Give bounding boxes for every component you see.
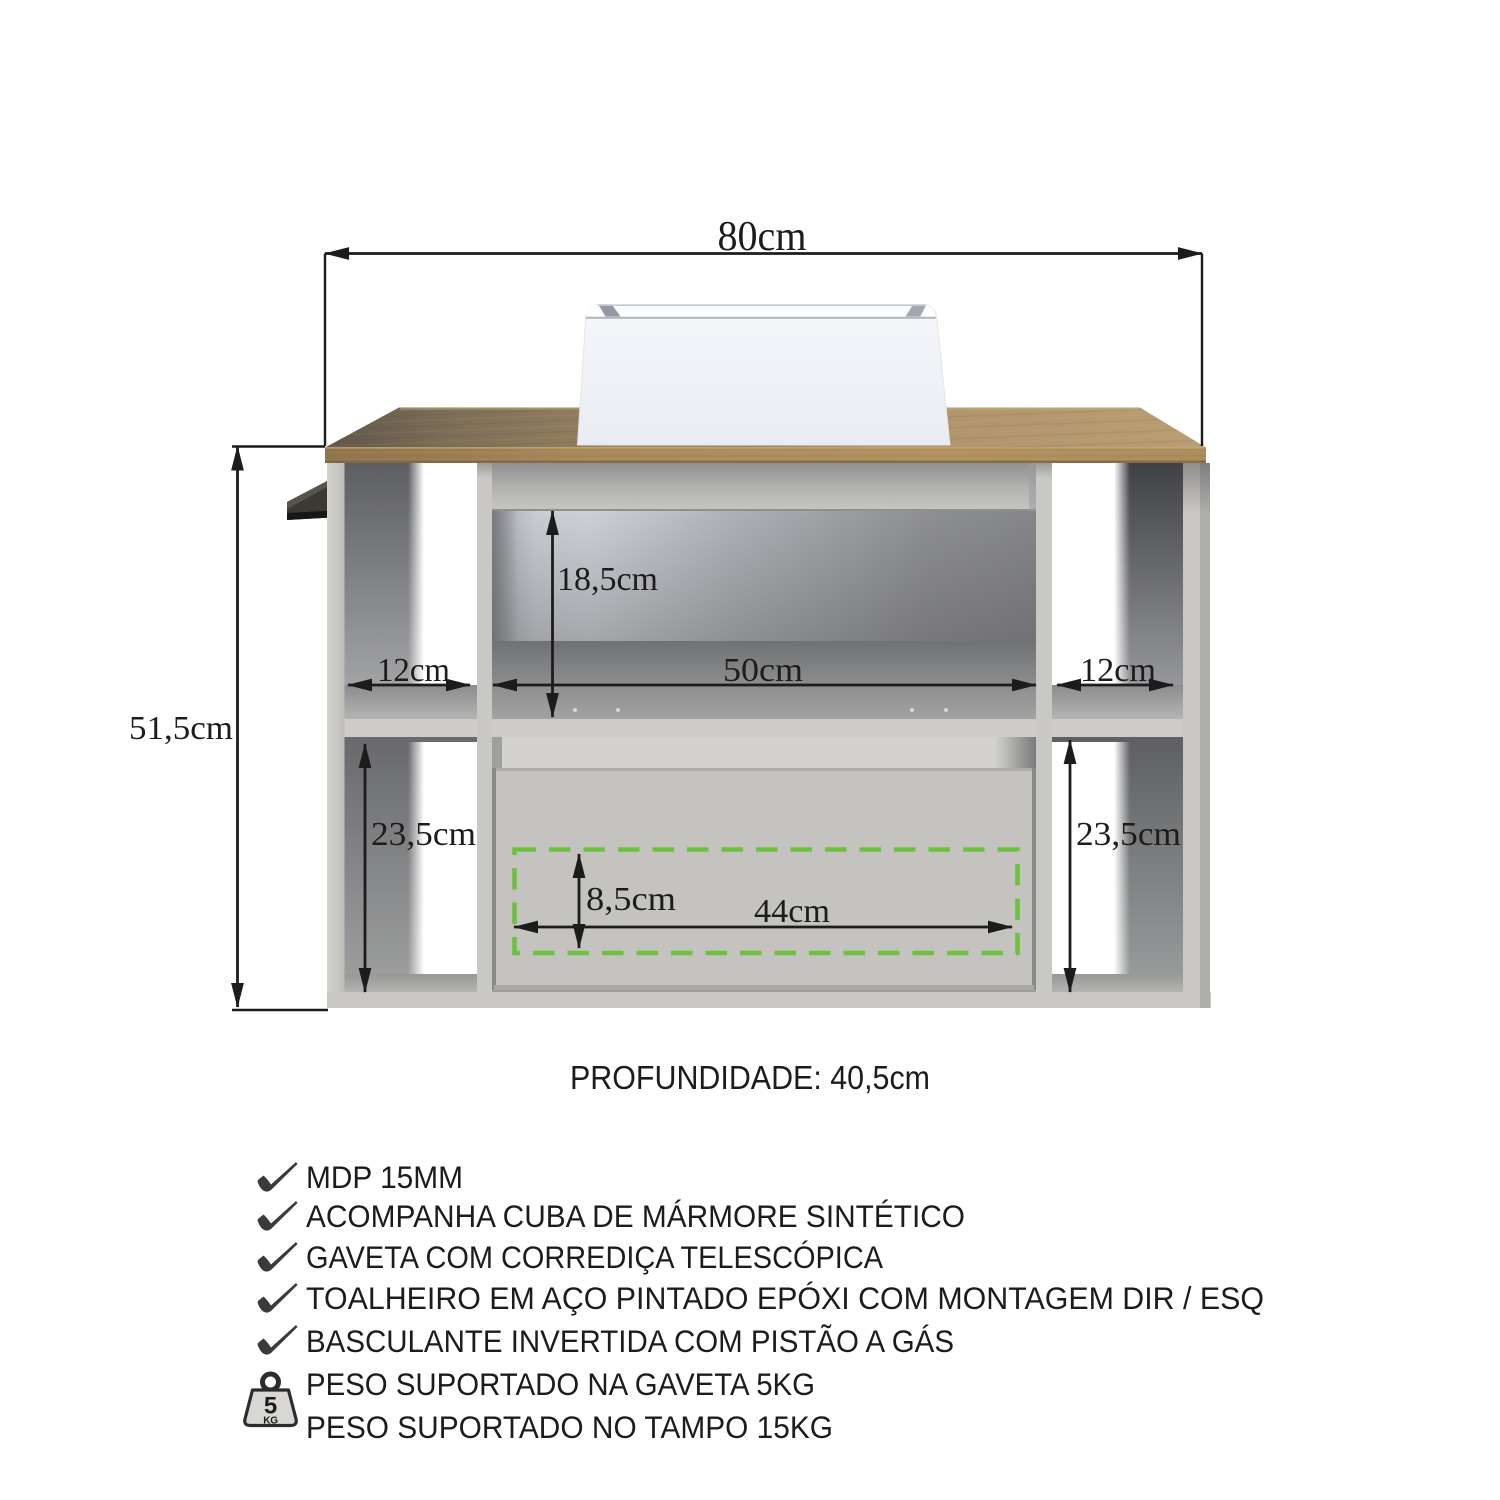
svg-text:8,5cm: 8,5cm bbox=[586, 881, 676, 918]
svg-text:18,5cm: 18,5cm bbox=[557, 561, 658, 598]
svg-text:80cm: 80cm bbox=[718, 214, 807, 260]
svg-text:KG: KG bbox=[263, 1416, 278, 1427]
svg-text:44cm: 44cm bbox=[754, 893, 830, 930]
svg-text:TOALHEIRO EM AÇO PINTADO EPÓXI: TOALHEIRO EM AÇO PINTADO EPÓXI COM MONTA… bbox=[306, 1280, 1264, 1316]
svg-text:PROFUNDIDADE: 40,5cm: PROFUNDIDADE: 40,5cm bbox=[570, 1059, 930, 1096]
svg-text:50cm: 50cm bbox=[723, 652, 803, 689]
svg-text:51,5cm: 51,5cm bbox=[129, 710, 233, 747]
svg-text:MDP 15MM: MDP 15MM bbox=[306, 1159, 463, 1195]
svg-text:ACOMPANHA CUBA DE MÁRMORE SINT: ACOMPANHA CUBA DE MÁRMORE SINTÉTICO bbox=[306, 1198, 965, 1234]
svg-text:BASCULANTE INVERTIDA COM PISTÃ: BASCULANTE INVERTIDA COM PISTÃO A GÁS bbox=[306, 1323, 954, 1359]
svg-text:GAVETA COM CORREDIÇA TELESCÓPI: GAVETA COM CORREDIÇA TELESCÓPICA bbox=[306, 1239, 883, 1275]
svg-text:PESO SUPORTADO NO TAMPO 15KG: PESO SUPORTADO NO TAMPO 15KG bbox=[306, 1409, 833, 1445]
svg-text:PESO SUPORTADO NA GAVETA 5KG: PESO SUPORTADO NA GAVETA 5KG bbox=[306, 1366, 815, 1402]
svg-text:12cm: 12cm bbox=[377, 652, 450, 689]
svg-text:12cm: 12cm bbox=[1080, 652, 1156, 689]
svg-text:23,5cm: 23,5cm bbox=[1076, 816, 1181, 853]
svg-text:23,5cm: 23,5cm bbox=[371, 816, 476, 853]
